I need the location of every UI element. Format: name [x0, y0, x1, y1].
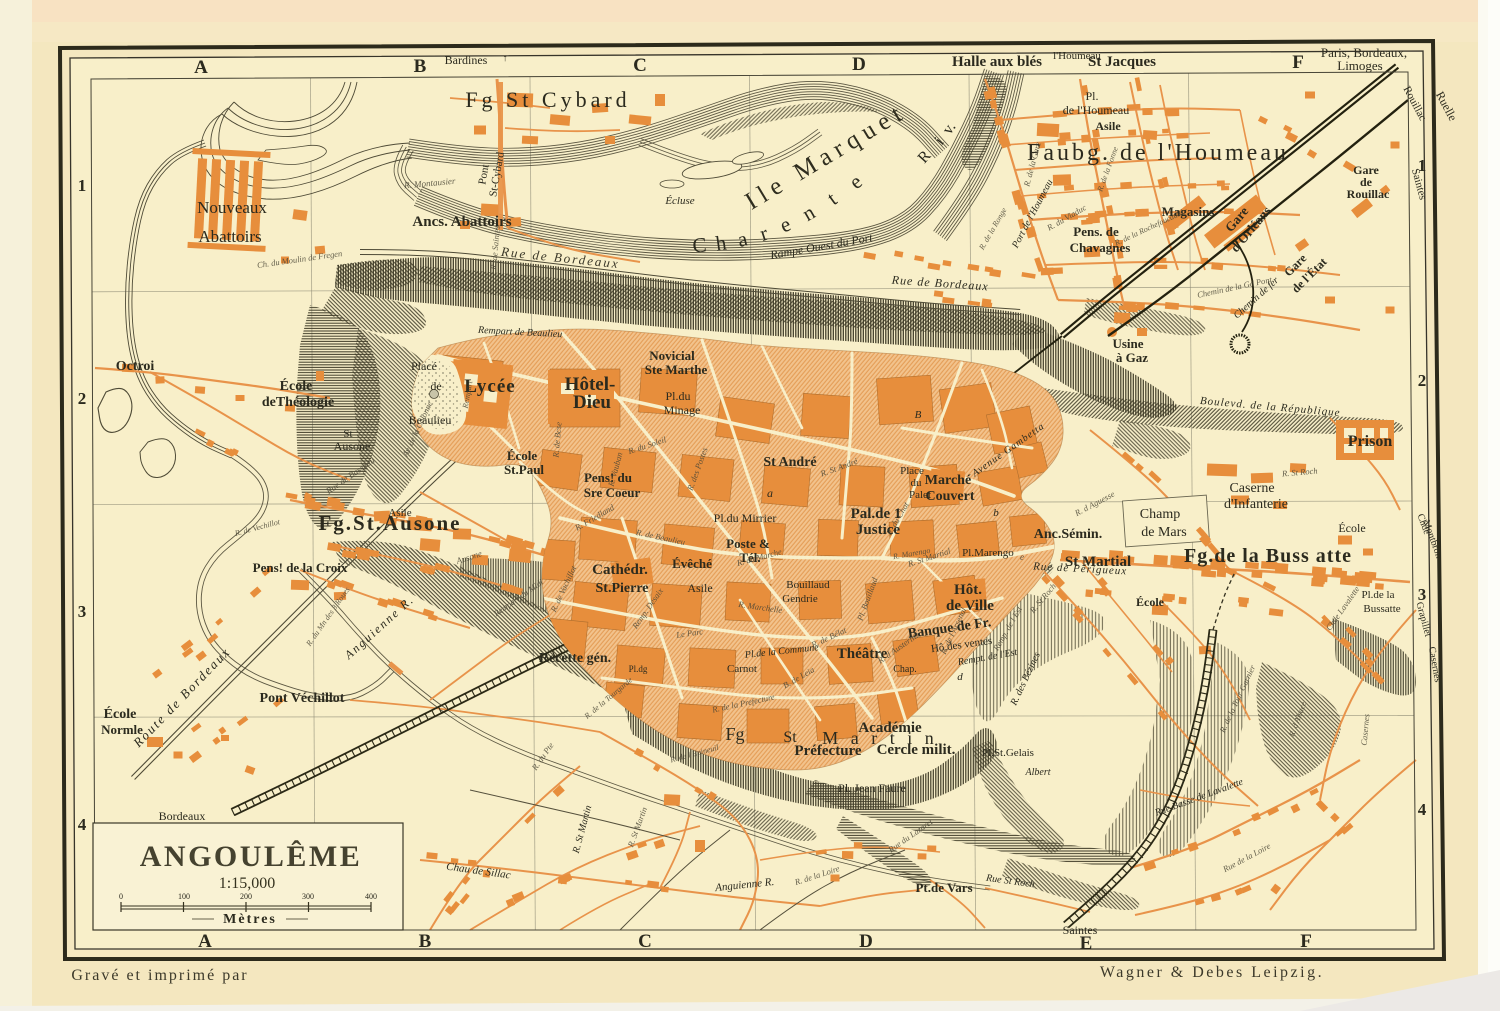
svg-text:Pl.de la: Pl.de la: [1362, 589, 1395, 601]
svg-text:Prison: Prison: [1348, 433, 1393, 450]
svg-text:d'Infanterie: d'Infanterie: [1224, 497, 1288, 512]
svg-text:ANGOULÊME: ANGOULÊME: [140, 840, 363, 873]
svg-text:100: 100: [178, 892, 190, 901]
svg-text:d: d: [957, 671, 963, 683]
svg-text:de l'Houmeau: de l'Houmeau: [1063, 103, 1129, 117]
svg-text:2: 2: [78, 389, 87, 408]
svg-text:Abattoirs: Abattoirs: [198, 227, 261, 246]
svg-text:St.Paul: St.Paul: [504, 462, 544, 477]
svg-text:Gendrie: Gendrie: [782, 593, 818, 605]
svg-text:400: 400: [365, 892, 377, 901]
svg-text:↑: ↑: [503, 53, 508, 64]
svg-text:de Mars: de Mars: [1141, 525, 1187, 540]
svg-text:St Martial: St Martial: [1065, 554, 1131, 570]
svg-text:École: École: [1136, 595, 1165, 609]
svg-text:Pl.: Pl.: [1085, 89, 1098, 103]
svg-text:St.Pierre: St.Pierre: [596, 581, 649, 596]
svg-text:Préfecture: Préfecture: [794, 743, 862, 759]
svg-text:École: École: [507, 448, 538, 463]
svg-text:300: 300: [302, 892, 314, 901]
svg-text:Bussatte: Bussatte: [1363, 603, 1400, 615]
svg-text:Minage: Minage: [664, 403, 701, 417]
svg-text:e: e: [1020, 552, 1024, 562]
svg-text:Cathédr.: Cathédr.: [592, 562, 648, 578]
svg-text:Écluse: Écluse: [664, 195, 694, 207]
svg-text:D: D: [859, 931, 873, 952]
svg-text:de Ville: de Ville: [946, 598, 994, 614]
svg-text:Pl. Jean Faure: Pl. Jean Faure: [838, 781, 906, 795]
svg-text:Mètres: Mètres: [223, 912, 277, 927]
svg-text:B: B: [419, 931, 432, 952]
svg-text:Hôt.: Hôt.: [954, 582, 982, 598]
svg-text:C: C: [692, 233, 708, 258]
svg-text:Placé: Placé: [411, 359, 437, 373]
svg-text:Pl.dg: Pl.dg: [629, 664, 648, 674]
svg-text:Pl.du Mirrier: Pl.du Mirrier: [714, 511, 777, 525]
svg-text:Palet: Palet: [909, 489, 931, 501]
svg-text:de: de: [430, 379, 441, 393]
svg-text:Normle: Normle: [101, 722, 143, 737]
svg-text:F: F: [1292, 52, 1304, 73]
svg-text:Asile: Asile: [388, 507, 411, 519]
svg-text:3: 3: [78, 602, 87, 621]
svg-text:Novicial: Novicial: [649, 348, 695, 363]
svg-text:Gravé et imprimé par: Gravé et imprimé par: [71, 967, 248, 984]
svg-text:Pens. de: Pens. de: [1073, 224, 1119, 239]
svg-text:Fg: Fg: [725, 724, 744, 744]
svg-text:2: 2: [1418, 371, 1427, 390]
svg-text:Faubg. de l'Houmeau: Faubg. de l'Houmeau: [1027, 140, 1289, 166]
svg-text:4: 4: [1418, 800, 1427, 819]
svg-text:Fg St Cybard: Fg St Cybard: [465, 87, 630, 112]
svg-text:École: École: [280, 377, 313, 394]
svg-text:Saintes: Saintes: [1063, 923, 1098, 937]
svg-text:Recette gén.: Recette gén.: [539, 651, 611, 666]
svg-text:b: b: [993, 507, 999, 519]
svg-text:Pt.de Vars: Pt.de Vars: [915, 880, 972, 895]
svg-text:Dieu: Dieu: [573, 392, 611, 413]
svg-text:Octroi: Octroi: [116, 359, 155, 374]
svg-text:deThéologie: deThéologie: [262, 395, 334, 410]
svg-text:a: a: [767, 486, 773, 500]
svg-text:4: 4: [78, 815, 87, 834]
svg-text:Pont Véchillot: Pont Véchillot: [260, 691, 345, 706]
svg-text:Académie: Académie: [858, 720, 922, 736]
svg-text:C: C: [633, 55, 647, 76]
svg-text:Couvert: Couvert: [926, 489, 975, 504]
svg-text:Halle aux blés: Halle aux blés: [952, 54, 1042, 70]
svg-text:Asile: Asile: [1095, 119, 1121, 133]
svg-text:Ausone: Ausone: [334, 439, 371, 453]
svg-text:Pens! de la Croix: Pens! de la Croix: [253, 560, 348, 575]
svg-text:Ste Marthe: Ste Marthe: [645, 362, 708, 377]
svg-text:Asile: Asile: [687, 581, 712, 595]
svg-text:Bouillaud: Bouillaud: [786, 579, 830, 591]
svg-text:Cercle milit.: Cercle milit.: [877, 742, 956, 758]
svg-text:Wagner & Debes Leipzig.: Wagner & Debes Leipzig.: [1100, 964, 1324, 981]
svg-text:B: B: [915, 409, 922, 421]
svg-text:Caserne: Caserne: [1229, 481, 1274, 496]
svg-text:Champ: Champ: [1140, 507, 1180, 522]
svg-text:Pl.St.Gelais: Pl.St.Gelais: [982, 747, 1034, 759]
svg-text:École: École: [1338, 521, 1365, 535]
svg-text:St André: St André: [763, 455, 816, 470]
svg-text:École: École: [104, 705, 137, 722]
svg-text:F: F: [1300, 931, 1312, 952]
svg-text:200: 200: [240, 892, 252, 901]
svg-text:l'Houmeau: l'Houmeau: [1053, 50, 1101, 62]
svg-text:Carnot: Carnot: [727, 663, 757, 675]
svg-text:Chap.: Chap.: [893, 664, 917, 675]
svg-text:à Gaz: à Gaz: [1116, 350, 1148, 365]
svg-text:Pl.du: Pl.du: [665, 389, 690, 403]
svg-text:Poste &: Poste &: [726, 536, 770, 551]
svg-text:Marché: Marché: [925, 473, 971, 488]
svg-text:C: C: [638, 931, 652, 952]
svg-text:Pl.Marengo: Pl.Marengo: [962, 547, 1014, 559]
svg-text:Fg.de la Buss atte: Fg.de la Buss atte: [1184, 545, 1352, 567]
svg-text:Rouillac: Rouillac: [1347, 187, 1390, 201]
svg-text:Bardines: Bardines: [445, 53, 488, 67]
svg-text:B: B: [414, 56, 427, 77]
svg-text:0: 0: [119, 892, 123, 901]
svg-text:Albert: Albert: [1025, 767, 1051, 778]
svg-text:D: D: [852, 54, 866, 75]
svg-text:Évêché: Évêché: [672, 556, 712, 571]
svg-text:Usine: Usine: [1112, 336, 1143, 351]
svg-text:Bordeaux: Bordeaux: [159, 809, 206, 823]
svg-text:Nouveaux: Nouveaux: [197, 198, 267, 217]
svg-text:1: 1: [78, 176, 87, 195]
svg-text:Limoges: Limoges: [1337, 58, 1383, 73]
svg-text:Anc.Sémin.: Anc.Sémin.: [1034, 527, 1102, 542]
svg-text:A: A: [194, 57, 208, 78]
svg-text:du: du: [911, 477, 923, 489]
svg-text:A: A: [198, 931, 212, 952]
svg-text:Place: Place: [900, 465, 924, 477]
svg-text:1:15,000: 1:15,000: [219, 875, 275, 892]
